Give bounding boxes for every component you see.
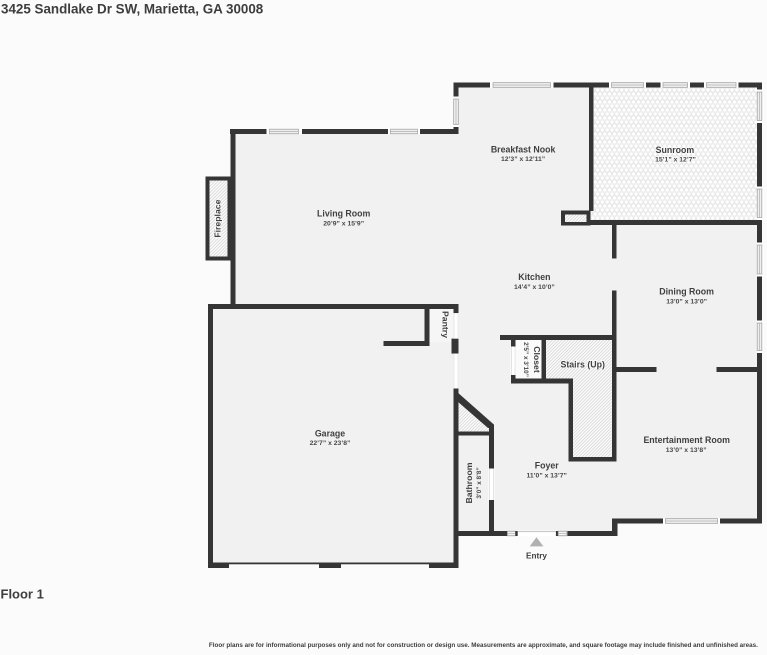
svg-text:Sunroom: Sunroom [656,145,695,155]
svg-text:13’0” x 13’0”: 13’0” x 13’0” [666,299,707,306]
svg-text:14’4” x 10’0”: 14’4” x 10’0” [514,284,555,291]
svg-text:Stairs (Up): Stairs (Up) [560,359,605,369]
svg-text:Closet: Closet [532,346,542,373]
svg-text:Entertainment Room: Entertainment Room [643,435,730,445]
svg-text:22’7” x 23’8”: 22’7” x 23’8” [310,440,351,447]
svg-text:12’3” x 12’11”: 12’3” x 12’11” [501,156,545,163]
svg-text:Floor 1: Floor 1 [1,586,44,601]
svg-text:Fireplace: Fireplace [213,199,223,237]
svg-text:3425 Sandlake Dr SW, Marietta,: 3425 Sandlake Dr SW, Marietta, GA 30008 [1,1,264,16]
svg-text:Entry: Entry [526,552,547,561]
svg-text:Kitchen: Kitchen [518,272,550,282]
svg-text:Floor plans are for informatio: Floor plans are for informational purpos… [209,642,758,649]
svg-text:13’0” x 13’8”: 13’0” x 13’8” [666,447,707,454]
svg-text:Breakfast Nook: Breakfast Nook [491,144,556,154]
svg-text:Dining Room: Dining Room [659,287,714,297]
svg-text:3’0” x 8’8”: 3’0” x 8’8” [476,467,483,498]
svg-text:Garage: Garage [315,428,345,438]
svg-text:Foyer: Foyer [535,461,560,471]
svg-text:15’1” x 12’7”: 15’1” x 12’7” [655,157,696,164]
svg-text:2’5” x 3’10”: 2’5” x 3’10” [522,342,529,377]
svg-text:11’0” x 13’7”: 11’0” x 13’7” [526,472,566,479]
svg-text:Bathroom: Bathroom [464,462,474,503]
svg-text:20’9” x 15’9”: 20’9” x 15’9” [323,220,364,227]
svg-text:Living Room: Living Room [317,209,370,219]
svg-text:Pantry: Pantry [440,311,450,338]
